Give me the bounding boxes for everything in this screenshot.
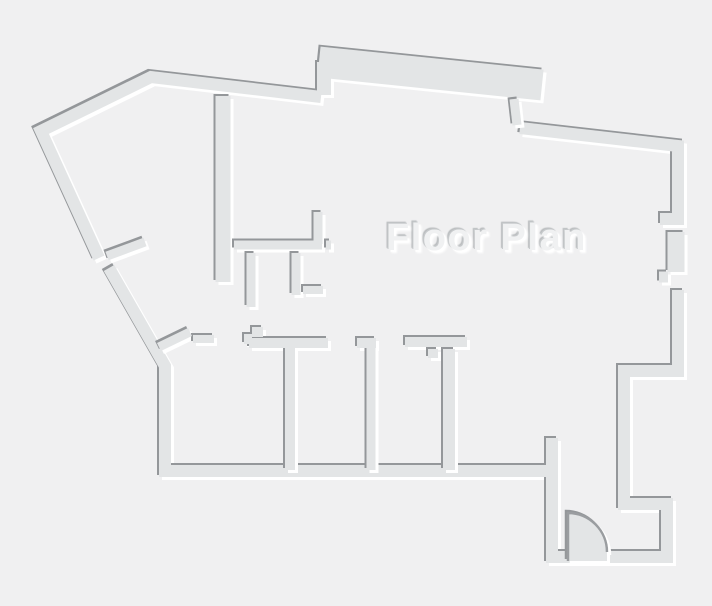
entry-door-swing (568, 513, 607, 561)
wall-outline-lower-left (109, 268, 548, 471)
door-swing-area (568, 513, 607, 561)
floor-plan-drawing (0, 0, 712, 606)
exterior-walls (41, 62, 678, 557)
wall-topright-step (514, 99, 517, 125)
floor-plan-canvas: Floor Plan (0, 0, 712, 606)
wall-diagonal-door-stub (107, 242, 145, 256)
wall-outline-upper-left (41, 77, 321, 258)
floor-plan-title: Floor Plan (386, 217, 587, 260)
wall-diagonal-corner-stub (159, 332, 190, 347)
wall-top-protrusion (319, 62, 542, 85)
wall-top-right (520, 128, 678, 219)
